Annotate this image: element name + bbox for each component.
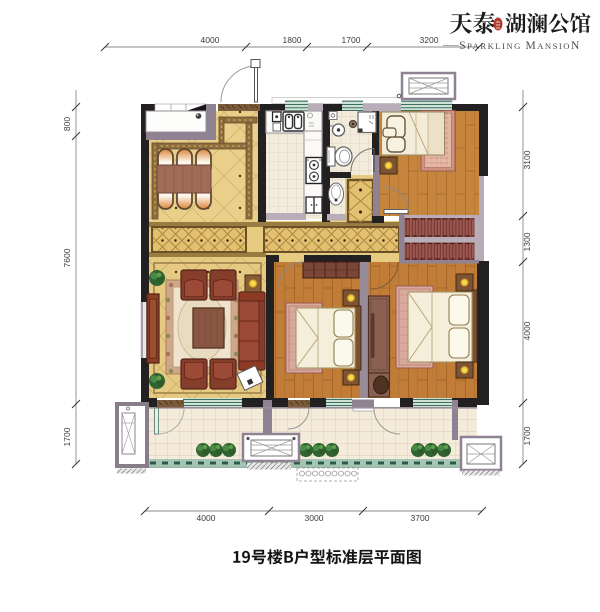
svg-text:1700: 1700 [342, 35, 361, 45]
svg-text:4000: 4000 [522, 321, 532, 340]
svg-text:1700: 1700 [522, 426, 532, 445]
svg-text:1300: 1300 [522, 232, 532, 251]
svg-text:800: 800 [62, 117, 72, 131]
svg-text:7600: 7600 [62, 248, 72, 267]
svg-text:4000: 4000 [197, 513, 216, 523]
svg-text:3700: 3700 [411, 513, 430, 523]
svg-text:4000: 4000 [201, 35, 220, 45]
svg-text:1700: 1700 [62, 427, 72, 446]
svg-text:SPARKLING MANSION: SPARKLING MANSION [459, 40, 581, 52]
svg-text:1800: 1800 [283, 35, 302, 45]
svg-text:3000: 3000 [305, 513, 324, 523]
svg-text:3200: 3200 [420, 35, 439, 45]
svg-text:3100: 3100 [522, 150, 532, 169]
